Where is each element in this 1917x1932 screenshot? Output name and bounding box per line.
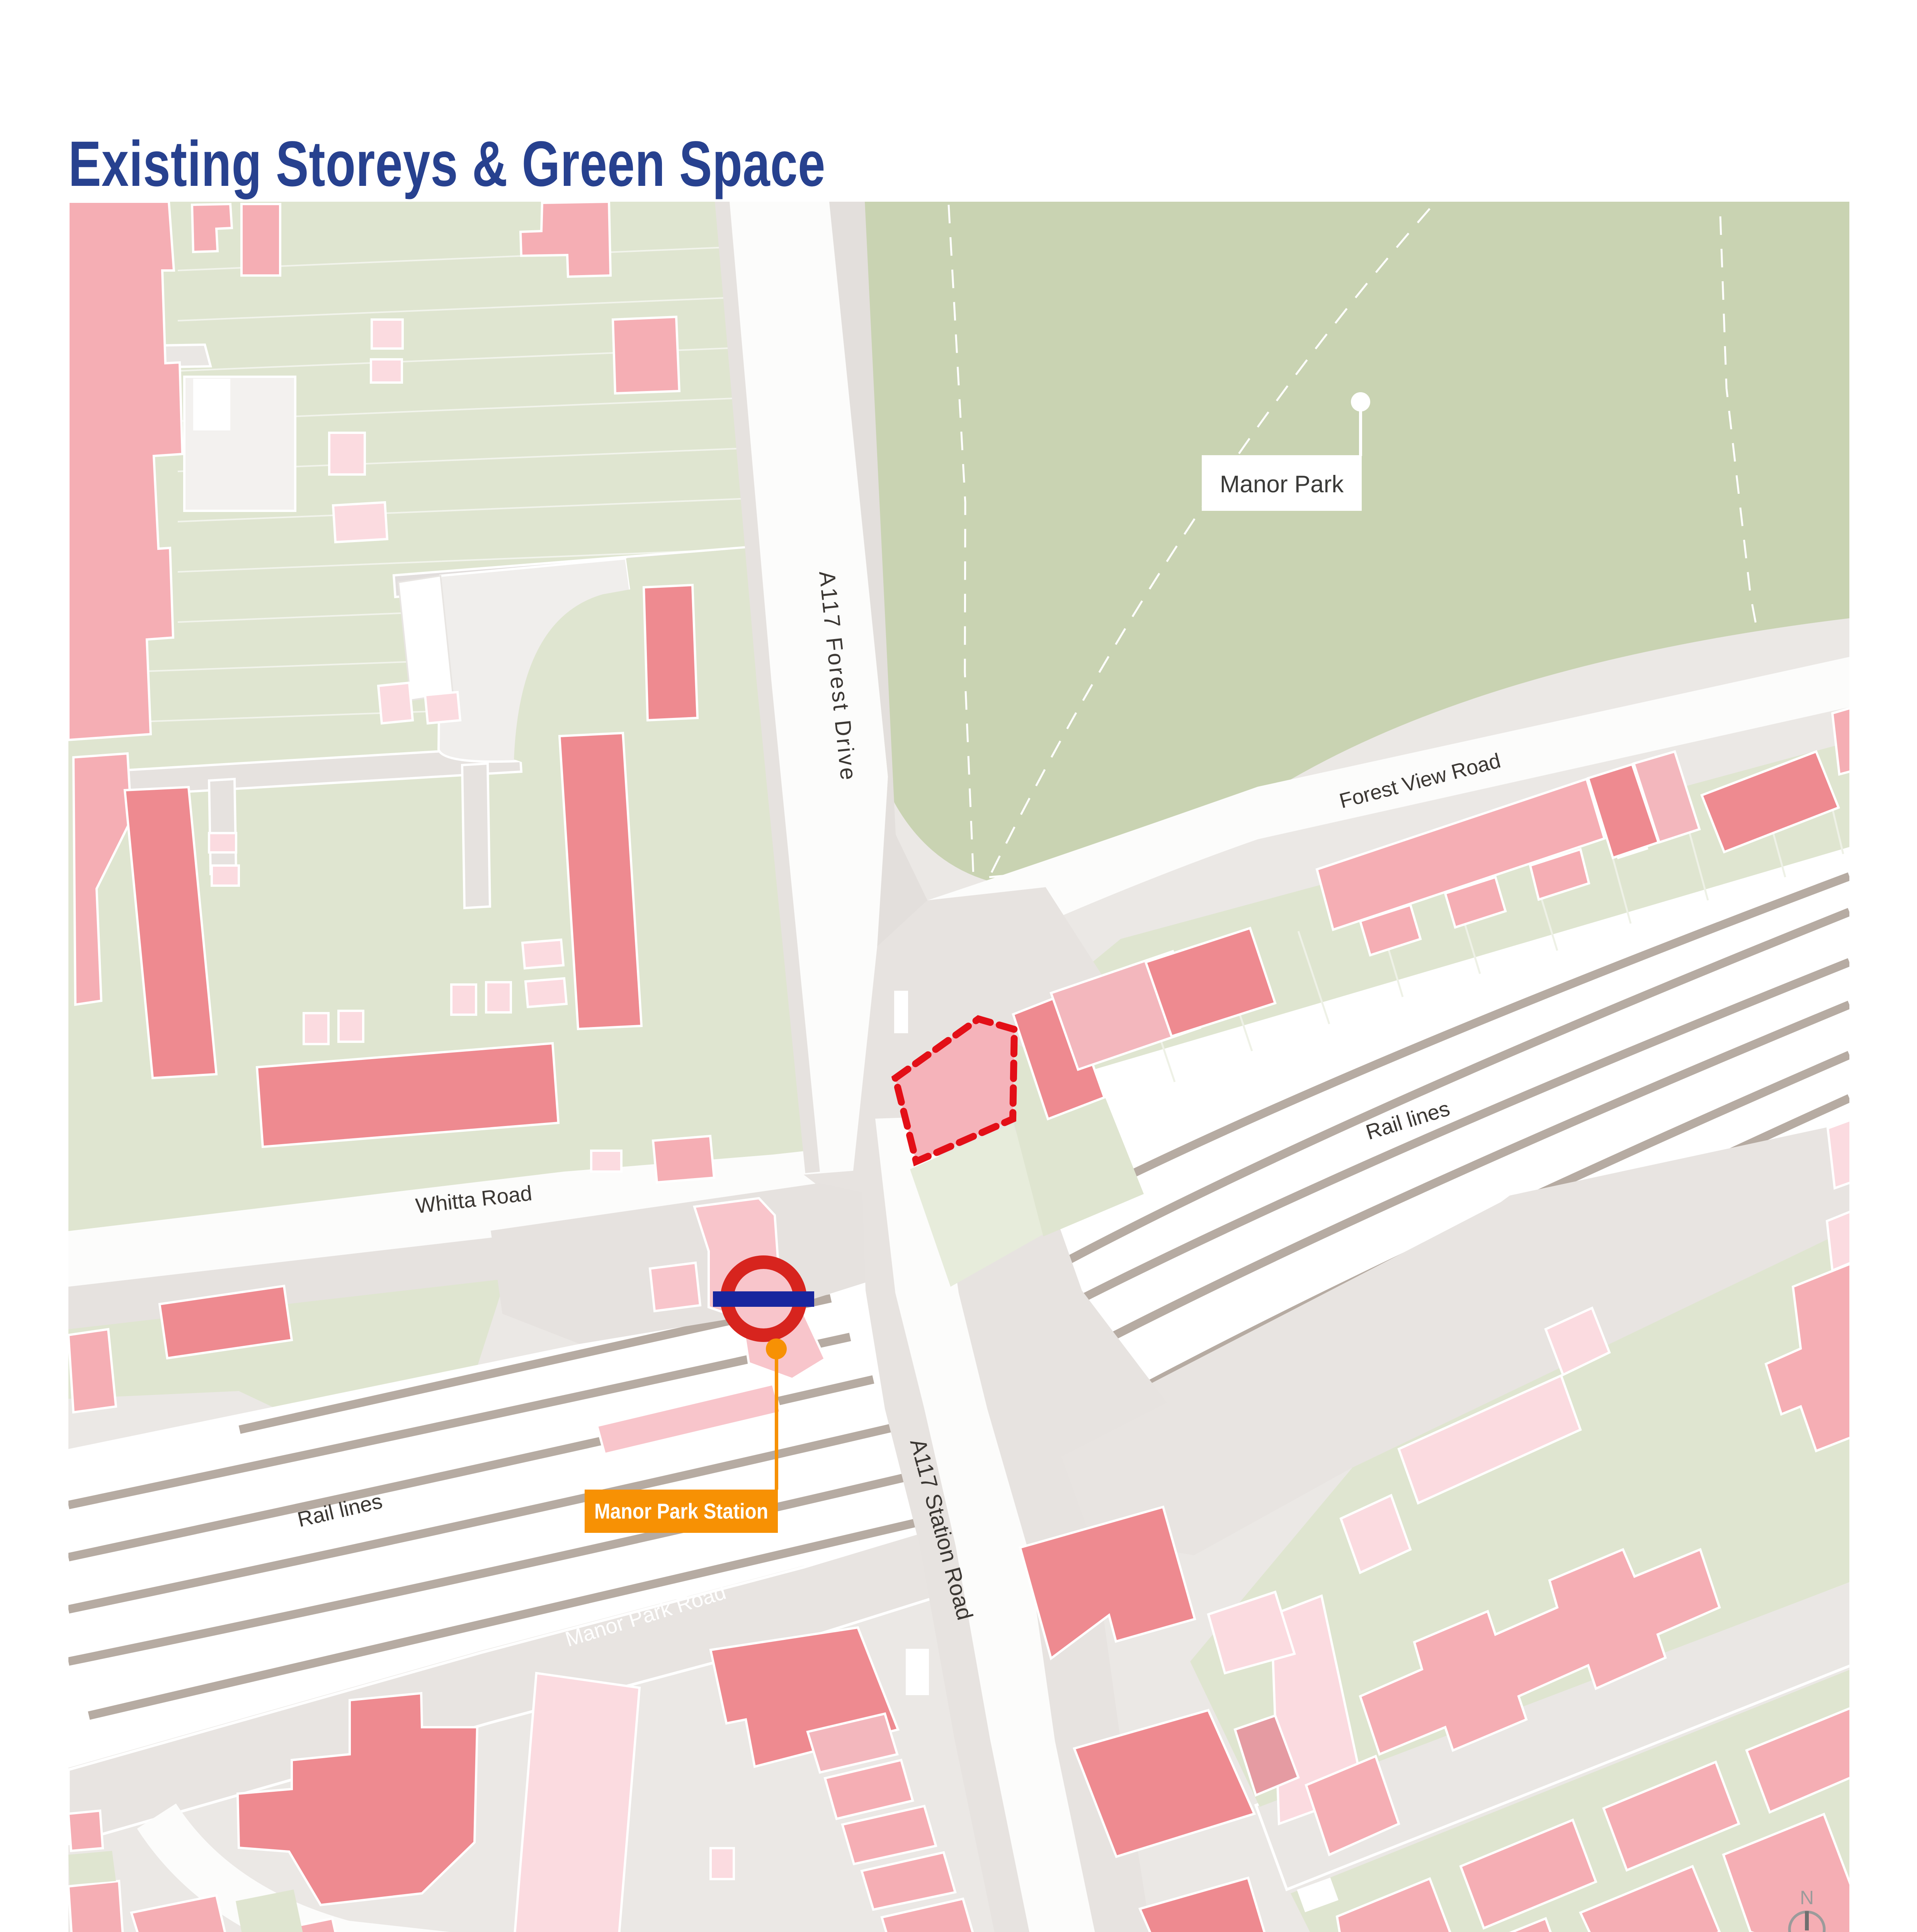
svg-text:Manor Park: Manor Park <box>1220 471 1344 498</box>
svg-text:Manor Park Station: Manor Park Station <box>594 1499 768 1523</box>
svg-text:N: N <box>1800 1887 1814 1908</box>
